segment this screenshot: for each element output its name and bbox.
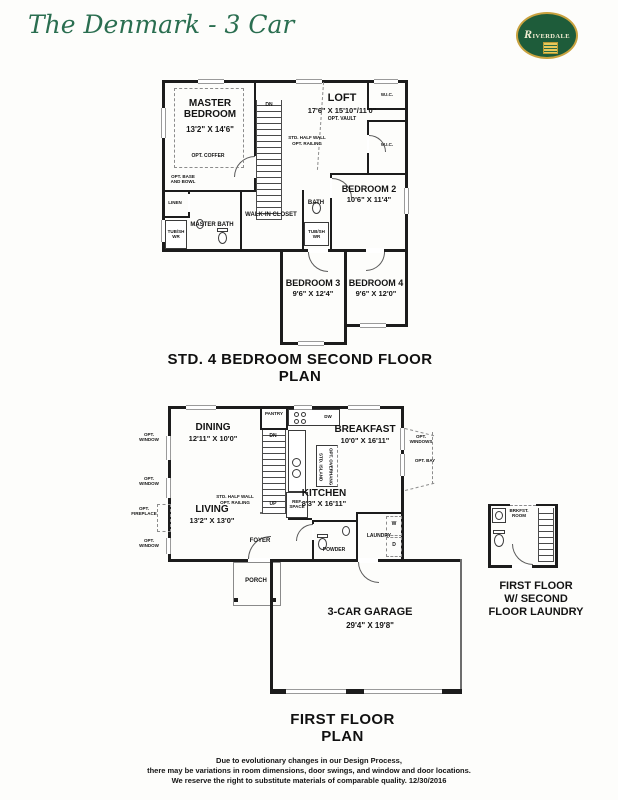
- sink-icon: [495, 511, 503, 520]
- living-dims: 13'2" X 13'0": [176, 517, 248, 525]
- first-floor-plan: DW REF. SPACE STD. ISLAND OPT. OVERHANG …: [160, 400, 480, 735]
- window: [360, 323, 386, 328]
- breakfast-label: BREAKFAST: [326, 424, 404, 435]
- dining-label: DINING: [178, 422, 248, 433]
- bedroom4-dims: 9'6" X 12'0": [346, 290, 406, 298]
- stairs-up-label: UP: [264, 502, 282, 508]
- linen-label: LINEN: [162, 200, 188, 205]
- kitchen-label: KITCHEN: [294, 488, 354, 499]
- wall-segment: [404, 559, 462, 562]
- brkfst-room-label: BRKFST. ROOM: [504, 508, 534, 518]
- window: [161, 108, 166, 138]
- second-floor-plan: TUB/SHWR TUB/SHWR MASTER BEDROOM 13'2" X…: [162, 80, 408, 348]
- second-floor-caption: STD. 4 BEDROOM SECOND FLOOR PLAN: [150, 351, 450, 385]
- range-burner-icon: [294, 412, 299, 417]
- riverdale-logo: RIVERDALE: [516, 12, 578, 59]
- wic-label: W.I.C.: [370, 92, 404, 97]
- door-opening: [188, 194, 190, 212]
- window: [298, 341, 324, 346]
- logo-wave-icon: [543, 42, 558, 54]
- first-floor-caption: FIRST FLOOR PLAN: [270, 711, 415, 745]
- toilet-tank-icon: [317, 534, 328, 538]
- breakfast-dims: 10'0" X 16'11": [326, 437, 404, 445]
- detail-caption-line2: W/ SECOND: [472, 593, 600, 605]
- window: [186, 405, 216, 410]
- tub-shower: TUB/SHWR: [165, 220, 187, 249]
- opening-dash: [510, 505, 536, 506]
- master-bath-label: MASTER BATH: [190, 222, 234, 229]
- wall-segment: [488, 504, 491, 568]
- opt-bay-label: OPT. BAY: [412, 458, 438, 463]
- wall-segment: [288, 518, 312, 520]
- powder-label: POWDER: [312, 548, 356, 554]
- porch-post: [234, 598, 238, 602]
- window: [198, 79, 224, 84]
- garage-slab-edge: [270, 689, 462, 694]
- foyer-label: FOYER: [242, 538, 278, 545]
- disclaimer-line2: there may be variations in room dimensio…: [0, 766, 618, 776]
- opt-windows-label: OPT. WINDOWS: [406, 434, 436, 444]
- bath-label: BATH: [304, 200, 328, 207]
- wall-segment: [346, 689, 364, 694]
- walk-in-closet-label: WALK-IN CLOSET: [244, 212, 298, 219]
- wall-segment: [162, 249, 282, 252]
- window: [166, 478, 171, 498]
- stacked-laundry-unit: [538, 508, 554, 562]
- island-opt-label: OPT. OVERHANG: [328, 447, 333, 487]
- toilet-icon: [494, 534, 504, 547]
- railing-note: OPT. RAILING: [284, 141, 330, 146]
- window: [166, 436, 171, 460]
- detail-caption-line1: FIRST FLOOR: [472, 580, 600, 592]
- disclaimer-line1: Due to evolutionary changes in our Desig…: [0, 756, 618, 766]
- opt-vault-label: OPT. VAULT: [300, 117, 384, 123]
- staircase: [256, 100, 282, 220]
- disclaimer-line3: We reserve the right to substitute mater…: [0, 776, 618, 786]
- page-title: The Denmark - 3 Car: [28, 10, 294, 39]
- window: [296, 79, 322, 84]
- sink-icon: [342, 526, 350, 536]
- washer-label: W: [389, 522, 399, 528]
- opt-window-label: OPT. WINDOW: [136, 538, 162, 548]
- kitchen-island: STD. ISLAND OPT. OVERHANG: [316, 445, 338, 487]
- dining-dims: 12'11" X 10'0": [178, 435, 248, 443]
- living-label: LIVING: [176, 504, 248, 515]
- window: [348, 405, 380, 410]
- opt-window-label: OPT. WINDOW: [136, 476, 162, 486]
- porch-label: PORCH: [235, 578, 277, 585]
- window: [374, 79, 398, 84]
- sink-icon: [292, 458, 301, 467]
- wall-segment: [442, 689, 462, 694]
- stairs-dn-label: DN: [260, 103, 278, 109]
- range-burner-icon: [301, 412, 306, 417]
- opt-fireplace-label: OPT. FIREPLACE: [130, 506, 158, 516]
- disclaimer: Due to evolutionary changes in our Desig…: [0, 756, 618, 786]
- wall-segment: [356, 512, 403, 514]
- master-bedroom-label: MASTER BEDROOM: [170, 98, 250, 120]
- detail-caption-line3: FLOOR LAUNDRY: [472, 606, 600, 618]
- wall-segment: [555, 504, 558, 568]
- wall-segment: [367, 173, 405, 175]
- fireplace-outline: [157, 504, 171, 532]
- stairs-dn-label: DN: [264, 434, 282, 440]
- range-burner-icon: [301, 419, 306, 424]
- range-burner-icon: [294, 419, 299, 424]
- dryer-label: D: [389, 543, 399, 549]
- wall-segment: [270, 689, 286, 694]
- wall-segment: [460, 559, 462, 692]
- kitchen-dims: 8'3" X 16'11": [294, 500, 354, 508]
- wall-segment: [330, 173, 369, 175]
- bedroom4-label: BEDROOM 4: [346, 278, 406, 288]
- opt-window-label: OPT. WINDOW: [136, 432, 162, 442]
- tub-shower-label: TUB/SHWR: [307, 229, 326, 239]
- laundry-label: LAUNDRY: [358, 534, 400, 540]
- bay-window-outline: [405, 483, 434, 491]
- half-wall-note: STD. HALF WALL: [212, 494, 258, 499]
- wall-segment: [260, 406, 262, 430]
- opt-coffer-label: OPT. COFFER: [182, 154, 234, 160]
- logo-text: RIVERDALE: [518, 27, 576, 42]
- wic-label: W.I.C.: [370, 142, 404, 147]
- sink-icon: [292, 469, 301, 478]
- garage-label: 3-CAR GARAGE: [310, 606, 430, 618]
- tub-shower: TUB/SHWR: [304, 222, 329, 246]
- bedroom2-label: BEDROOM 2: [332, 184, 406, 194]
- island-std-label: STD. ISLAND: [318, 448, 323, 486]
- master-bedroom-dims: 13'2" X 14'6": [170, 126, 250, 135]
- dryer-box: D: [386, 537, 402, 557]
- wall-segment: [312, 520, 358, 522]
- garage-dims: 29'4" X 19'8": [310, 622, 430, 631]
- door-swing-icon: [512, 544, 533, 565]
- laundry-option-detail: BRKFST. ROOM FIRST FLOOR W/ SECOND FLOOR…: [472, 496, 600, 636]
- wall-segment: [240, 190, 242, 252]
- tub-shower-label: TUB/SHWR: [167, 229, 185, 239]
- bedroom3-dims: 9'6" X 12'4": [282, 290, 344, 298]
- half-wall-note: STD. HALF WALL: [284, 135, 330, 140]
- toilet-tank-icon: [493, 530, 505, 534]
- window: [166, 538, 171, 554]
- door-swing-icon: [296, 524, 313, 541]
- bedroom2-dims: 10'6" X 11'4": [332, 196, 406, 204]
- toilet-icon: [218, 232, 227, 244]
- door-swing-icon: [308, 252, 328, 272]
- door-swing-icon: [358, 562, 379, 583]
- window: [294, 405, 312, 410]
- opt-base-bowl-label: OPT. BASE AND BOWL: [168, 174, 198, 184]
- dishwasher-label: DW: [318, 414, 338, 419]
- wall-segment: [162, 216, 188, 218]
- loft-dims: 17'6" X 15'10"/11'0": [286, 107, 398, 115]
- pantry-label: PANTRY: [258, 411, 290, 416]
- window: [400, 454, 405, 476]
- bedroom3-label: BEDROOM 3: [282, 278, 344, 288]
- door-swing-icon: [366, 252, 385, 271]
